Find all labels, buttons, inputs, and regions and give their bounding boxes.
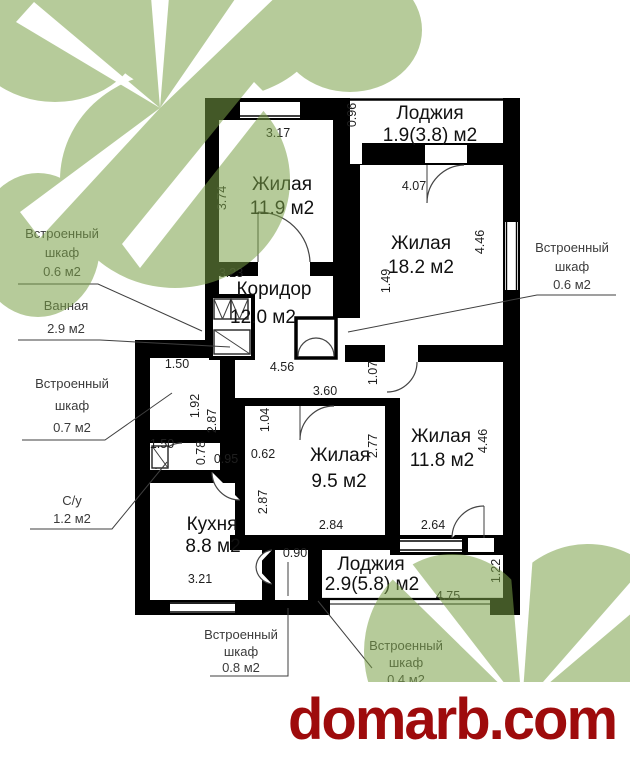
label-line: 0.6 м2 bbox=[553, 277, 591, 292]
label-builtin-closet-08: Встроенный шкаф 0.8 м2 bbox=[204, 627, 278, 675]
label-builtin-closet-06-right: Встроенный шкаф 0.6 м2 bbox=[535, 240, 609, 292]
wall bbox=[385, 398, 400, 550]
room-name: Жилая bbox=[411, 426, 471, 447]
dim-label: 1.50 bbox=[165, 357, 189, 371]
door-arc bbox=[387, 362, 417, 392]
leader-closet-06-right bbox=[348, 295, 616, 332]
wall bbox=[245, 398, 388, 406]
room-name: Жилая bbox=[391, 233, 451, 254]
label-line: Встроенный bbox=[35, 376, 109, 391]
room-area: 11.8 м2 bbox=[410, 450, 474, 471]
door-opening bbox=[468, 538, 494, 552]
door-arc bbox=[300, 406, 334, 440]
room-area: 9.5 м2 bbox=[311, 471, 366, 492]
label-builtin-closet-07: Встроенный шкаф 0.7 м2 bbox=[35, 376, 109, 435]
dim-label: 4.07 bbox=[402, 179, 426, 193]
room-name: Коридор bbox=[236, 279, 311, 300]
dim-label: 0.96 bbox=[345, 103, 359, 127]
room-area: 1.9(3.8) м2 bbox=[383, 125, 477, 146]
floorplan-drawing: 3.17 3.74 0.96 4.07 4.46 3.23 1.49 4.56 … bbox=[0, 0, 630, 758]
dim-label: 1.92 bbox=[188, 394, 202, 418]
wall bbox=[135, 340, 150, 615]
bathroom-door-panel bbox=[214, 299, 231, 319]
label-line: 0.7 м2 bbox=[53, 420, 91, 435]
label-line: шкаф bbox=[555, 259, 590, 274]
dim-label: 2.87 bbox=[256, 490, 270, 514]
door-arc bbox=[427, 165, 464, 203]
dim-label: 4.46 bbox=[476, 429, 490, 453]
wall bbox=[345, 345, 503, 362]
dim-label: 0.78 bbox=[194, 441, 208, 465]
dim-label: 4.56 bbox=[270, 360, 294, 374]
dim-label: 2.64 bbox=[421, 518, 445, 532]
dim-label: 3.60 bbox=[313, 384, 337, 398]
room-area: 12.0 м2 bbox=[230, 307, 296, 328]
wall bbox=[503, 98, 520, 615]
wall bbox=[148, 470, 235, 483]
leader-closet-04 bbox=[318, 601, 372, 668]
door-arc bbox=[452, 506, 484, 538]
dim-label: 0.90 bbox=[283, 546, 307, 560]
floorplan-page: 3.17 3.74 0.96 4.07 4.46 3.23 1.49 4.56 … bbox=[0, 0, 630, 758]
dim-label: 0.62 bbox=[251, 447, 275, 461]
dim-label: 1.07 bbox=[366, 361, 380, 385]
room-name: Кухня bbox=[187, 514, 238, 535]
door-opening bbox=[258, 262, 310, 276]
wall bbox=[262, 535, 275, 605]
label-line: шкаф bbox=[224, 644, 259, 659]
label-line: С/у bbox=[62, 493, 82, 508]
room-name: Жилая bbox=[310, 445, 370, 466]
watermark: domarb.com bbox=[288, 686, 616, 753]
dim-label: 3.21 bbox=[188, 572, 212, 586]
dim-label: 1.04 bbox=[258, 408, 272, 432]
dim-label: 4.46 bbox=[473, 230, 487, 254]
door-opening bbox=[425, 145, 467, 163]
dim-label: 2.87 bbox=[205, 409, 219, 433]
dim-label: 2.84 bbox=[319, 518, 343, 532]
room-name: Лоджия bbox=[396, 103, 463, 124]
label-line: шкаф bbox=[55, 398, 90, 413]
label-line: Встроенный bbox=[204, 627, 278, 642]
label-line: 1.2 м2 bbox=[53, 511, 91, 526]
label-line: 2.9 м2 bbox=[47, 321, 85, 336]
room-area: 18.2 м2 bbox=[388, 257, 454, 278]
room-name: Лоджия bbox=[337, 554, 404, 575]
dim-label: 0.95 bbox=[214, 452, 238, 466]
dim-label: 1.50 bbox=[150, 437, 174, 451]
label-line: 0.8 м2 bbox=[222, 660, 260, 675]
door-opening bbox=[385, 345, 418, 362]
label-wc: С/у 1.2 м2 bbox=[53, 493, 91, 526]
label-line: Встроенный bbox=[535, 240, 609, 255]
room-area: 8.8 м2 bbox=[185, 536, 240, 557]
